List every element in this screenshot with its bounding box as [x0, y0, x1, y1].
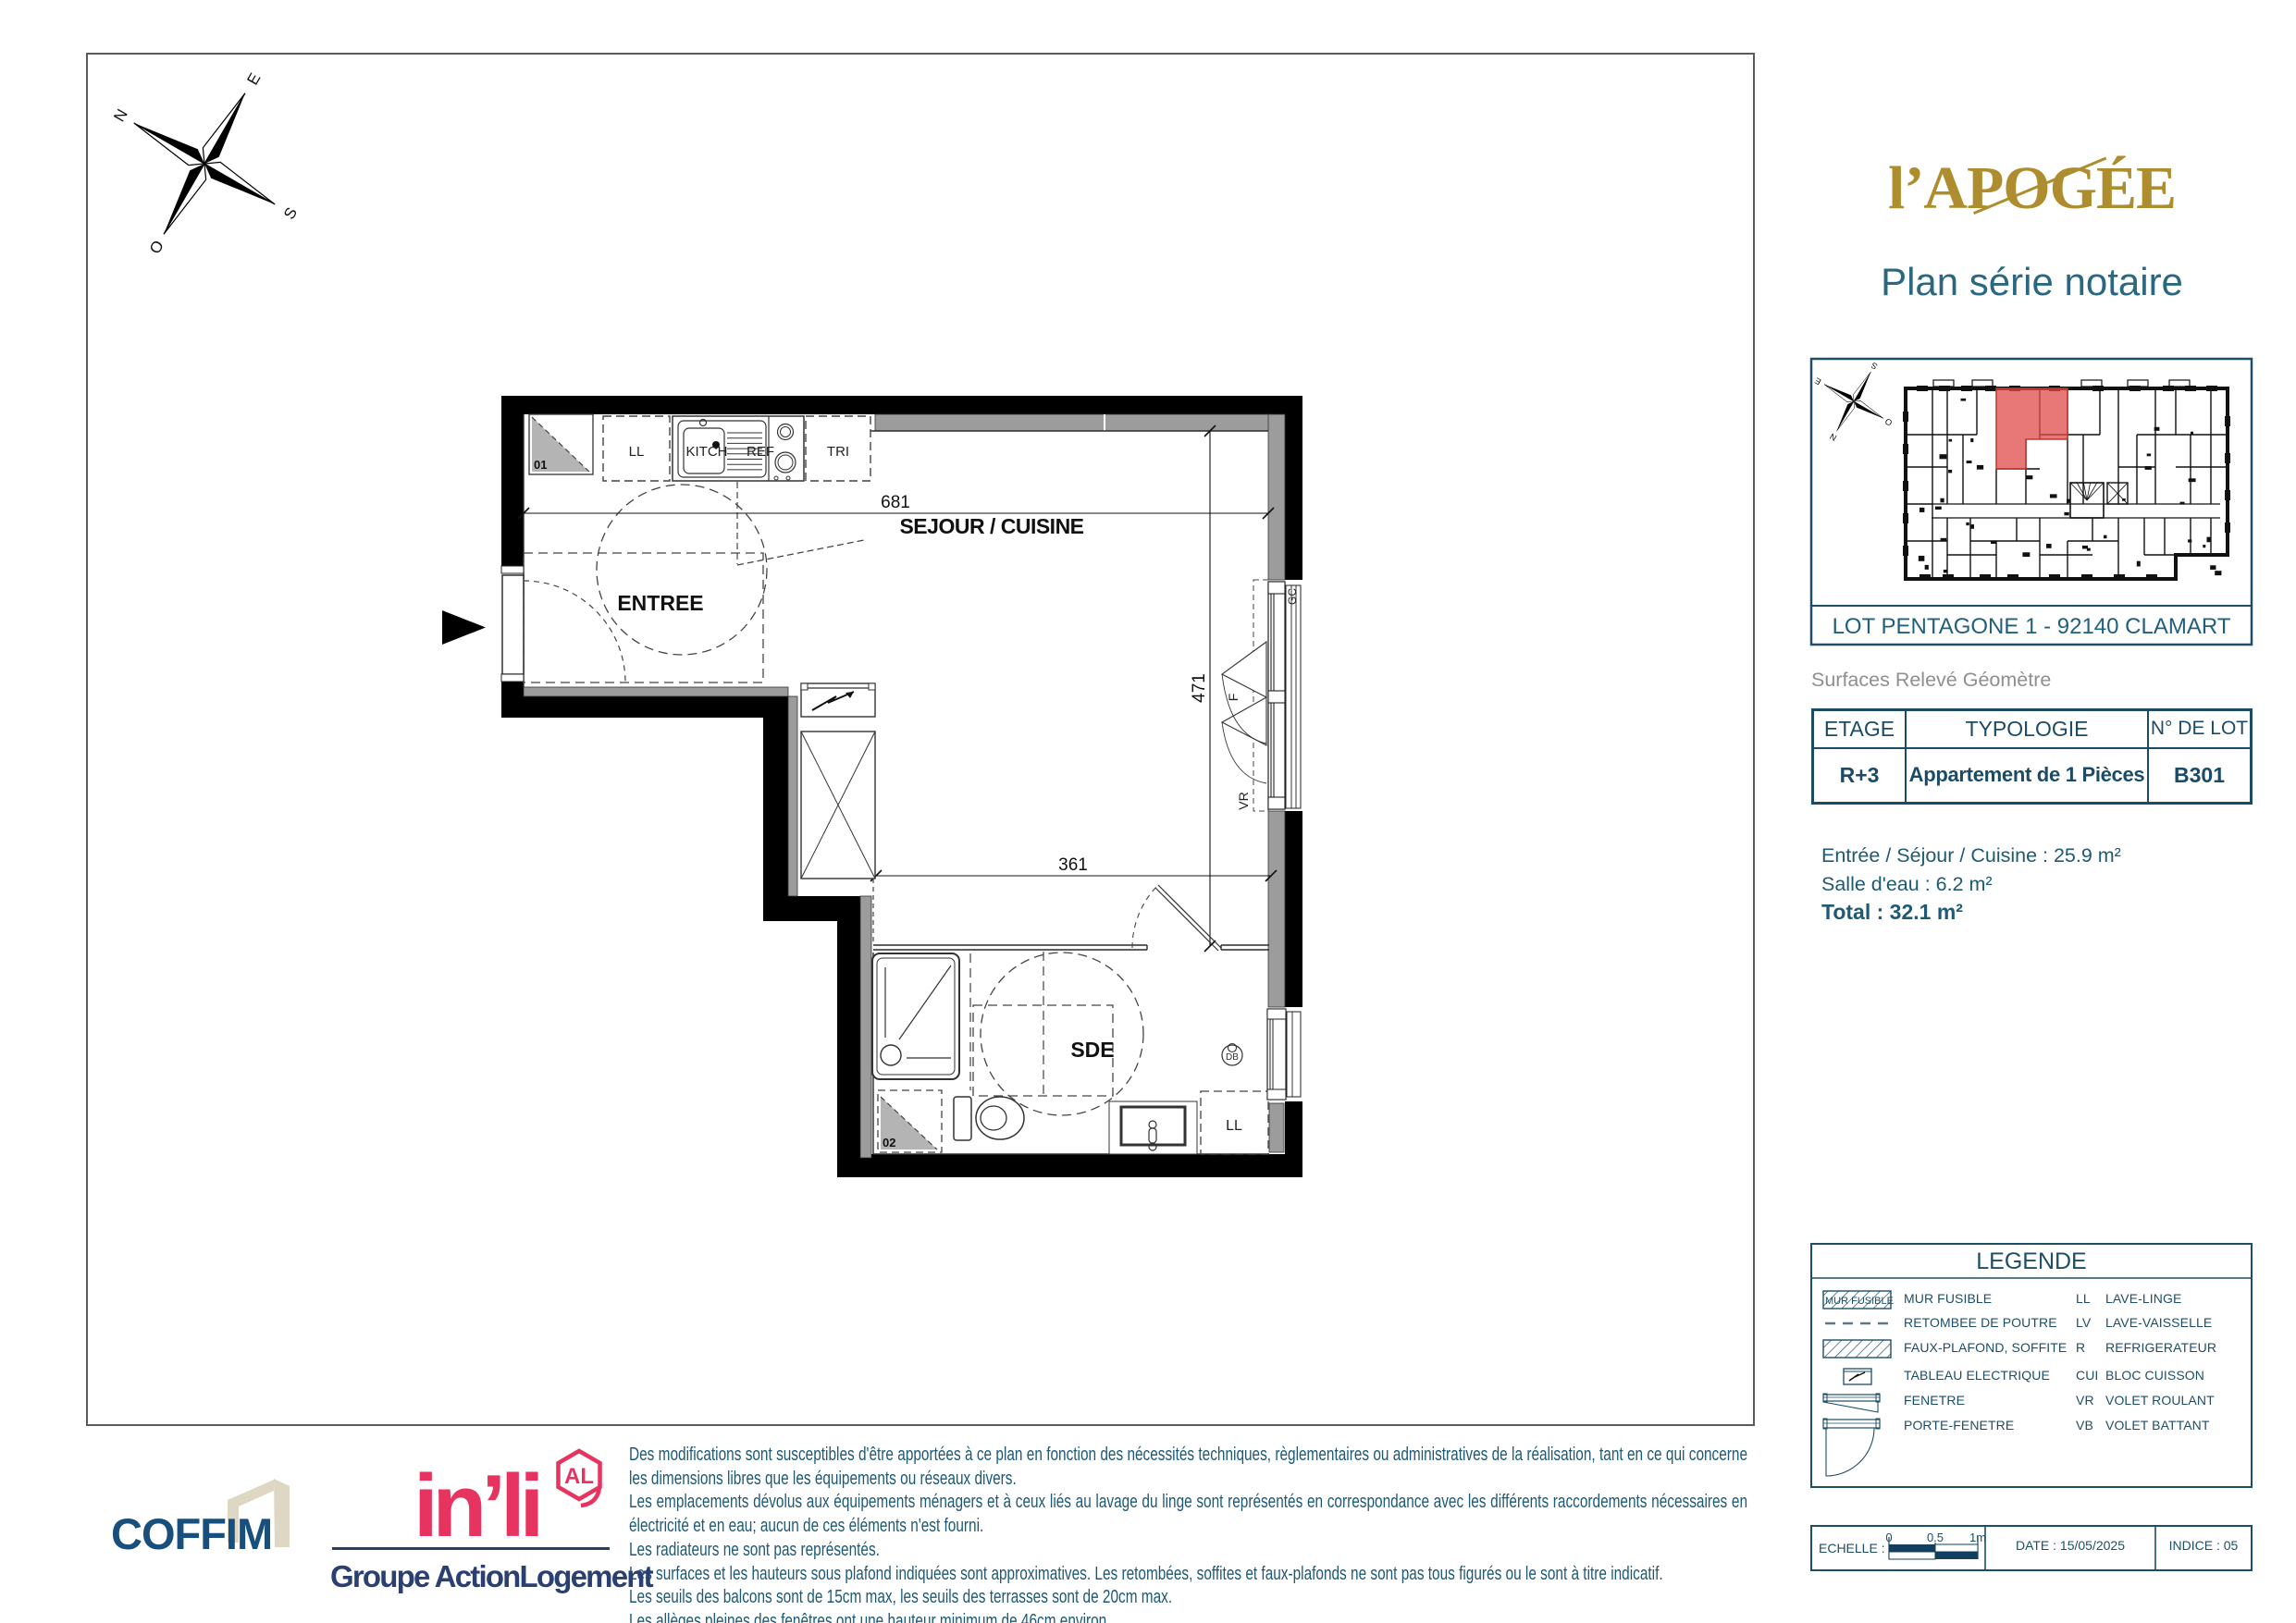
svg-text:361: 361	[1058, 855, 1088, 875]
svg-text:ENTREE: ENTREE	[617, 591, 703, 615]
svg-text:LL: LL	[1226, 1118, 1242, 1134]
svg-text:LL: LL	[629, 444, 645, 460]
svg-text:01: 01	[534, 458, 547, 472]
svg-text:471: 471	[1190, 673, 1209, 703]
svg-text:F: F	[1226, 694, 1241, 702]
svg-text:681: 681	[881, 493, 910, 512]
svg-text:REF: REF	[747, 444, 774, 460]
svg-text:SDE: SDE	[1070, 1038, 1114, 1062]
svg-text:SEJOUR / CUISINE: SEJOUR / CUISINE	[899, 514, 1083, 538]
svg-text:O: O	[1883, 416, 1894, 427]
svg-text:VR: VR	[1236, 792, 1251, 809]
svg-text:0.5: 0.5	[1927, 1531, 1944, 1544]
svg-text:N: N	[110, 106, 131, 125]
svg-text:GC: GC	[1286, 588, 1299, 605]
svg-text:N: N	[1828, 432, 1838, 443]
svg-text:MUR FUSIBLE: MUR FUSIBLE	[1825, 1296, 1894, 1307]
svg-text:02: 02	[883, 1136, 895, 1150]
svg-text:AL: AL	[564, 1464, 594, 1489]
svg-text:S: S	[280, 204, 301, 222]
svg-text:DB: DB	[1226, 1052, 1239, 1063]
svg-text:S: S	[1870, 361, 1879, 372]
svg-text:O: O	[146, 238, 167, 257]
svg-text:E: E	[243, 70, 264, 88]
svg-text:TRI: TRI	[827, 444, 849, 460]
svg-text:E: E	[1813, 375, 1822, 387]
svg-text:KITCH: KITCH	[686, 444, 728, 460]
